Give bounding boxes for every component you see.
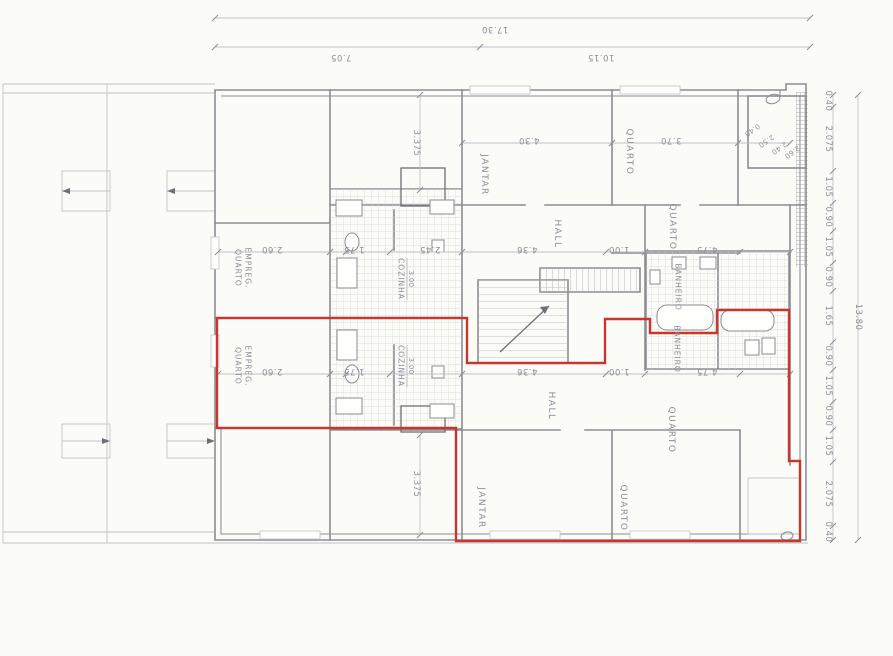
dim-interior: 2.45 <box>420 244 441 254</box>
dim-stair: 0.40 <box>743 122 761 138</box>
dim-room: 4.30 <box>519 135 540 145</box>
dim-room: 3.00 <box>407 271 415 288</box>
dim-interior: 4.75 <box>697 244 718 254</box>
dim-right-chain: 2.075 <box>823 126 833 153</box>
dim-interior: 1.00 <box>609 244 630 254</box>
room-label: COZINHA <box>397 258 406 300</box>
dim-interior: 1.75 <box>344 244 365 254</box>
dim-right-chain: 0.90 <box>823 267 833 288</box>
room-label: JANTAR <box>476 487 486 529</box>
room-label: BANHEIRO <box>673 325 682 373</box>
room-label: EMPREG. <box>244 248 253 289</box>
room-label: QUARTO <box>618 484 628 531</box>
dim-right-chain: 2.075 <box>823 481 833 508</box>
dim-right-chain: 0.40 <box>823 522 833 543</box>
dim-interior: 4.36 <box>517 244 538 254</box>
room-label: QUARTO <box>234 249 243 287</box>
room-label: QUARTO <box>624 128 634 175</box>
dim-right-chain: 0.90 <box>823 207 833 228</box>
room-label: COZINHA <box>397 345 406 387</box>
dim-interior: 3.375 <box>411 130 421 157</box>
dim-right-chain: 1.05 <box>823 376 833 397</box>
room-label: QUARTO <box>666 406 676 453</box>
floor-plan-scan: 17.307.0510.150.402.0751.050.901.050.901… <box>0 0 893 656</box>
dim-total-height: 13.80 <box>853 304 863 331</box>
dim-interior: 2.60 <box>262 366 283 376</box>
room-label: BANHEIRO <box>674 263 683 311</box>
dim-interior: 4.36 <box>517 366 538 376</box>
dim-interior: 3.375 <box>411 471 421 498</box>
dim-width-right: 10.15 <box>588 52 615 62</box>
plan-labels-layer: 17.307.0510.150.402.0751.050.901.050.901… <box>0 0 893 656</box>
dim-room: 3.70 <box>661 135 682 145</box>
room-label: EMPREG. <box>244 346 253 387</box>
dim-interior: 2.60 <box>262 244 283 254</box>
dim-right-chain: 1.05 <box>823 436 833 457</box>
dim-right-chain: 0.40 <box>823 91 833 112</box>
dim-interior: 1.75 <box>344 366 365 376</box>
room-label: JANTAR <box>479 154 489 196</box>
dim-right-chain: 1.05 <box>823 237 833 258</box>
room-label: HALL <box>552 220 562 249</box>
dim-room: 3.00 <box>407 358 415 375</box>
dim-right-chain: 0.90 <box>823 346 833 367</box>
dim-right-chain: 1.65 <box>823 306 833 327</box>
room-label: QUARTO <box>234 347 243 385</box>
dim-total-width: 17.30 <box>482 24 509 34</box>
dim-interior: 4.75 <box>697 366 718 376</box>
room-label: QUARTO <box>667 203 677 250</box>
room-label: HALL <box>546 392 556 421</box>
dim-right-chain: 0.90 <box>823 406 833 427</box>
dim-width-left: 7.05 <box>331 52 352 62</box>
dim-right-chain: 1.05 <box>823 177 833 198</box>
dim-interior: 1.00 <box>609 366 630 376</box>
